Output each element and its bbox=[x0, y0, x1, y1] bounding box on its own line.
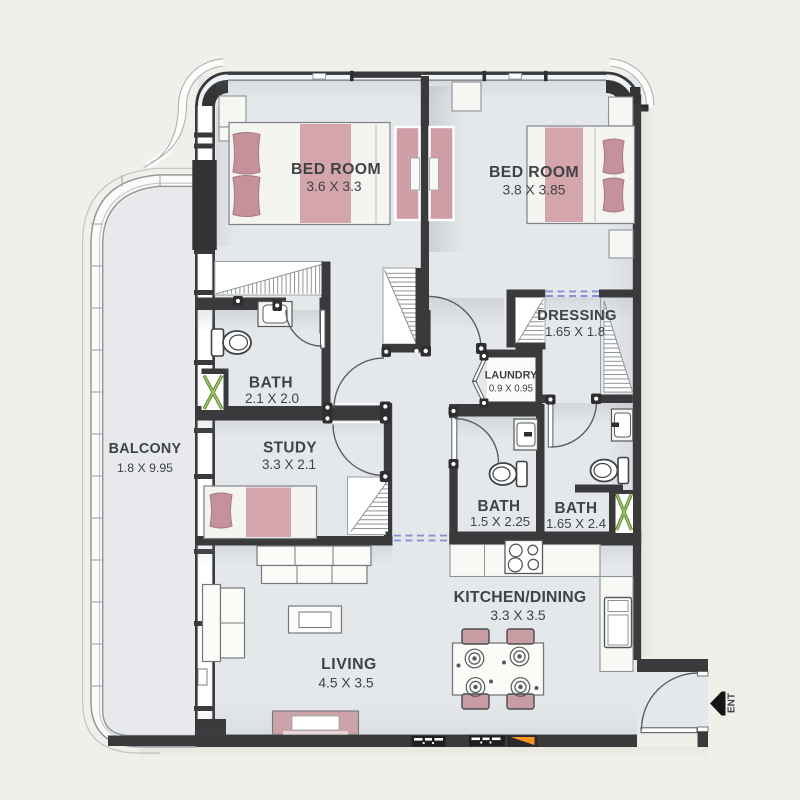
svg-text:2.1 X 2.0: 2.1 X 2.0 bbox=[245, 391, 299, 406]
svg-text:3.8 X 3.85: 3.8 X 3.85 bbox=[503, 183, 566, 198]
svg-text:LIVING: LIVING bbox=[321, 656, 377, 673]
svg-text:BATH: BATH bbox=[555, 500, 598, 517]
svg-text:DRESSING: DRESSING bbox=[537, 308, 617, 324]
svg-text:1.5 X 2.25: 1.5 X 2.25 bbox=[470, 514, 530, 529]
svg-text:4.5 X 3.5: 4.5 X 3.5 bbox=[318, 676, 374, 691]
svg-text:1.65 X 1.8: 1.65 X 1.8 bbox=[545, 324, 605, 339]
svg-text:ENT: ENT bbox=[727, 693, 738, 713]
svg-text:LAUNDRY: LAUNDRY bbox=[485, 370, 538, 382]
svg-text:1.65 X 2.4: 1.65 X 2.4 bbox=[546, 516, 606, 531]
svg-text:KITCHEN/DINING: KITCHEN/DINING bbox=[454, 589, 587, 606]
svg-text:BED ROOM: BED ROOM bbox=[489, 164, 579, 181]
svg-text:BATH: BATH bbox=[249, 375, 293, 392]
svg-text:3.3 X 2.1: 3.3 X 2.1 bbox=[262, 457, 316, 472]
svg-text:0.9 X 0.95: 0.9 X 0.95 bbox=[489, 384, 533, 395]
svg-text:3.6 X 3.3: 3.6 X 3.3 bbox=[306, 179, 362, 194]
svg-text:BED ROOM: BED ROOM bbox=[291, 161, 381, 178]
svg-text:BATH: BATH bbox=[478, 498, 521, 515]
svg-text:BALCONY: BALCONY bbox=[109, 441, 182, 457]
svg-text:3.3 X 3.5: 3.3 X 3.5 bbox=[490, 608, 546, 623]
svg-text:STUDY: STUDY bbox=[263, 440, 317, 457]
svg-text:1.8 X 9.95: 1.8 X 9.95 bbox=[117, 461, 173, 475]
